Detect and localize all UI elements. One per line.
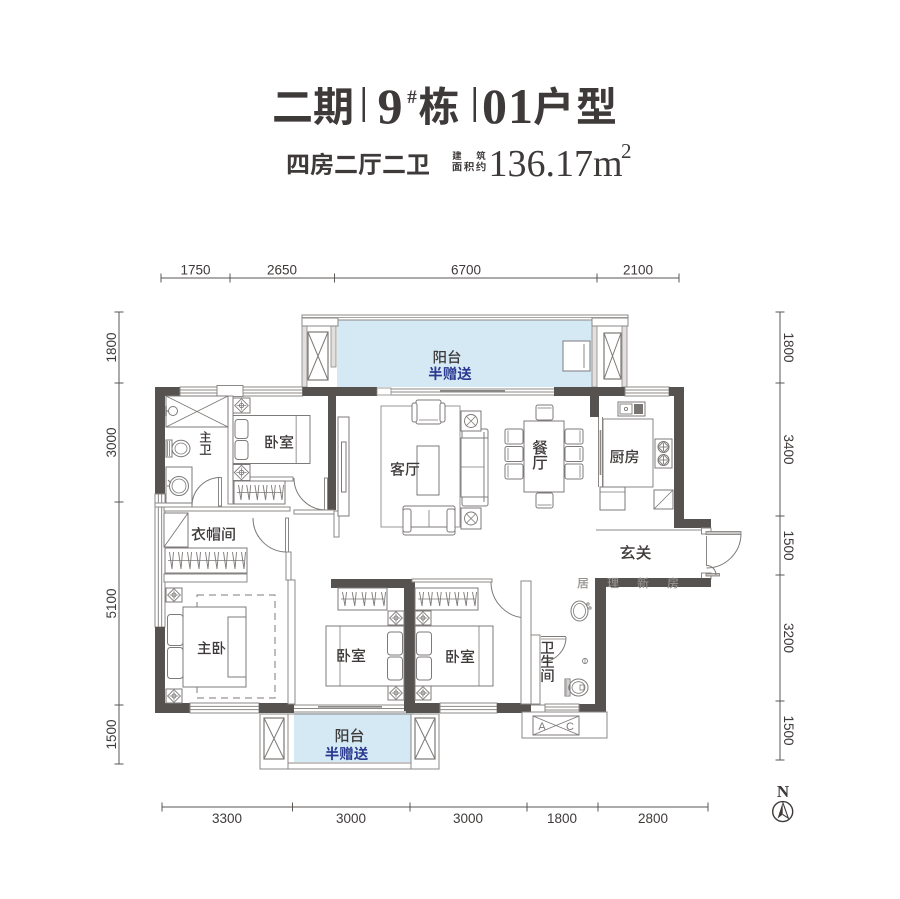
svg-text:3000: 3000 xyxy=(336,811,366,826)
svg-text:C: C xyxy=(566,721,574,733)
svg-text:3200: 3200 xyxy=(781,623,796,653)
svg-text:2: 2 xyxy=(621,139,632,163)
svg-text:1750: 1750 xyxy=(180,263,210,278)
svg-text:5100: 5100 xyxy=(104,588,119,618)
svg-text:3000: 3000 xyxy=(453,811,483,826)
svg-text:3400: 3400 xyxy=(781,434,796,464)
svg-text:1800: 1800 xyxy=(104,332,119,362)
svg-text:01: 01 xyxy=(482,78,534,134)
svg-text:6700: 6700 xyxy=(451,263,481,278)
svg-text:3300: 3300 xyxy=(212,811,242,826)
svg-text:1800: 1800 xyxy=(547,811,577,826)
svg-text:2650: 2650 xyxy=(267,263,297,278)
svg-text:#: # xyxy=(407,87,417,108)
svg-text:3000: 3000 xyxy=(104,427,119,457)
svg-text:N: N xyxy=(777,782,790,801)
svg-text:1500: 1500 xyxy=(781,715,796,745)
svg-text:9: 9 xyxy=(378,78,403,134)
svg-text:A: A xyxy=(538,721,546,733)
svg-text:1500: 1500 xyxy=(104,719,119,749)
svg-text:136.17m: 136.17m xyxy=(489,143,623,185)
svg-text:1500: 1500 xyxy=(781,530,796,560)
svg-text:2100: 2100 xyxy=(623,263,653,278)
svg-text:1800: 1800 xyxy=(781,332,796,362)
svg-text:2800: 2800 xyxy=(638,811,668,826)
